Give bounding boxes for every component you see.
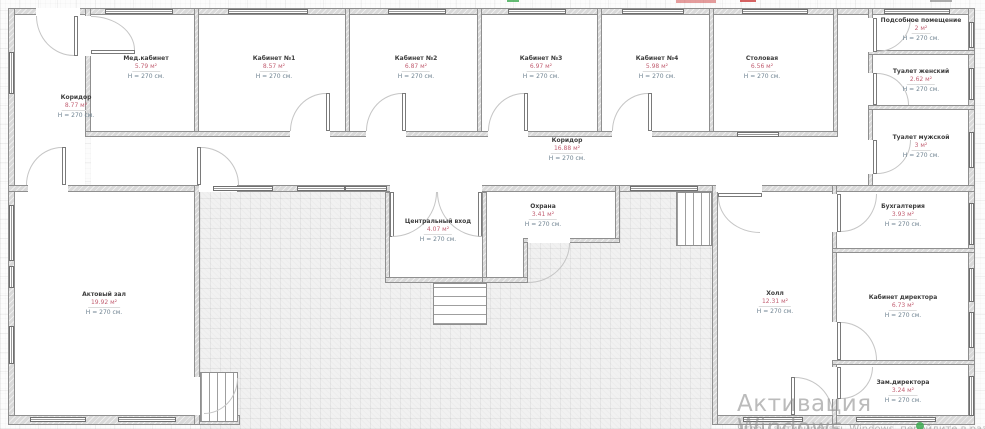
- door-opening: [390, 185, 482, 192]
- room-height: H = 270 см.: [405, 236, 471, 243]
- door-leaf[interactable]: [91, 50, 135, 54]
- window[interactable]: [297, 186, 345, 191]
- room-label-accounting: Бухгалтерия3.93 м²H = 270 см.: [881, 203, 925, 228]
- room-label-wc-men: Туалет мужской3 м²H = 270 см.: [893, 134, 950, 159]
- room-area: 12.31 м²: [759, 297, 791, 307]
- door-opening: [290, 131, 330, 137]
- room-name: Кабинет №3: [520, 55, 563, 62]
- window[interactable]: [969, 203, 974, 245]
- room-label-main-entrance: Центральный вход4.07 м²H = 270 см.: [405, 218, 471, 243]
- wall[interactable]: [712, 185, 718, 425]
- window[interactable]: [969, 312, 974, 348]
- wall[interactable]: [482, 277, 528, 283]
- window[interactable]: [9, 52, 14, 94]
- door-opening: [366, 131, 406, 137]
- room-label-office-1: Кабинет №18.57 м²H = 270 см.: [253, 55, 296, 80]
- room-height: H = 270 см.: [123, 73, 168, 80]
- room-name: Зам.директора: [877, 379, 930, 386]
- wall[interactable]: [832, 248, 975, 253]
- room-area: 3 м²: [912, 141, 931, 151]
- room-label-security: Охрана3.41 м²H = 270 см.: [525, 203, 561, 228]
- room-name: Актовый зал: [82, 291, 126, 298]
- door-opening: [612, 131, 652, 137]
- wall[interactable]: [194, 8, 199, 137]
- room-name: Холл: [757, 290, 793, 297]
- window[interactable]: [118, 417, 176, 422]
- wall[interactable]: [8, 185, 975, 192]
- door-opening: [36, 8, 80, 15]
- room-area: 6.87 м²: [402, 62, 430, 72]
- wall[interactable]: [868, 105, 975, 110]
- room-label-wc-women: Туалет женский2.62 м²H = 270 см.: [893, 68, 949, 93]
- room-height: H = 270 см.: [58, 112, 94, 119]
- wall[interactable]: [833, 8, 838, 137]
- room-name: Коридор: [549, 137, 585, 144]
- room-height: H = 270 см.: [253, 73, 296, 80]
- room-name: Мед.кабинет: [123, 55, 168, 62]
- wall[interactable]: [615, 185, 620, 243]
- room-height: H = 270 см.: [893, 86, 949, 93]
- window[interactable]: [622, 9, 684, 14]
- room-name: Кабинет №4: [636, 55, 679, 62]
- room-label-corridor-main: Коридор16.88 м²H = 270 см.: [549, 137, 585, 162]
- wall[interactable]: [482, 192, 487, 283]
- window[interactable]: [742, 9, 808, 14]
- door-leaf[interactable]: [326, 93, 330, 131]
- door-opening: [488, 131, 528, 137]
- room-area: 2.62 м²: [907, 75, 935, 85]
- room-area: 19.92 м²: [88, 298, 120, 308]
- window[interactable]: [213, 186, 273, 191]
- window[interactable]: [630, 186, 698, 191]
- room-label-office-2: Кабинет №26.87 м²H = 270 см.: [395, 55, 438, 80]
- wall[interactable]: [597, 8, 602, 137]
- room-area: 16.88 м²: [551, 144, 583, 154]
- room-label-office-3: Кабинет №36.97 м²H = 270 см.: [520, 55, 563, 80]
- window[interactable]: [969, 268, 974, 302]
- window[interactable]: [9, 205, 14, 261]
- toolbar-artifact-red2: [740, 0, 756, 2]
- window[interactable]: [388, 9, 446, 14]
- room-height: H = 270 см.: [869, 312, 938, 319]
- staircase[interactable]: [676, 192, 712, 246]
- window[interactable]: [737, 132, 779, 137]
- window[interactable]: [228, 9, 308, 14]
- window[interactable]: [345, 186, 387, 191]
- window[interactable]: [508, 9, 566, 14]
- room-label-director: Кабинет директора6.73 м²H = 270 см.: [869, 294, 938, 319]
- room-label-office-4: Кабинет №45.98 м²H = 270 см.: [636, 55, 679, 80]
- window[interactable]: [105, 9, 173, 14]
- window[interactable]: [969, 132, 974, 168]
- room-height: H = 270 см.: [82, 309, 126, 316]
- room-name: Центральный вход: [405, 218, 471, 225]
- staircase[interactable]: [433, 283, 487, 325]
- room-label-corridor-left: Коридор8.77 м²H = 270 см.: [58, 94, 94, 119]
- room-name: Охрана: [525, 203, 561, 210]
- room-name: Туалет мужской: [893, 134, 950, 141]
- floor-plan-canvas[interactable]: Коридор8.77 м²H = 270 см. Мед.кабинет5.7…: [0, 0, 985, 429]
- windows-activation-watermark-line2: Чтобы активировать Windows, перейдите в …: [737, 424, 985, 429]
- room-height: H = 270 см.: [881, 35, 962, 42]
- room-height: H = 270 см.: [549, 155, 585, 162]
- door-leaf[interactable]: [524, 93, 528, 131]
- wall[interactable]: [85, 131, 838, 137]
- room-label-utility: Подсобное помещение2 м²H = 270 см.: [881, 17, 962, 42]
- room-area: 6.97 м²: [527, 62, 555, 72]
- room-area: 5.79 м²: [132, 62, 160, 72]
- room-height: H = 270 см.: [395, 73, 438, 80]
- room-height: H = 270 см.: [893, 152, 950, 159]
- room-height: H = 270 см.: [744, 73, 780, 80]
- door-leaf[interactable]: [648, 93, 652, 131]
- toolbar-artifact-green: [507, 0, 519, 2]
- room-area: 8.57 м²: [260, 62, 288, 72]
- room-name: Подсобное помещение: [881, 17, 962, 24]
- room-name: Кабинет №2: [395, 55, 438, 62]
- room-height: H = 270 см.: [525, 221, 561, 228]
- toolbar-artifact-red: [676, 0, 716, 3]
- settings-icon: [916, 422, 924, 429]
- room-label-assembly-hall: Актовый зал19.92 м²H = 270 см.: [82, 291, 126, 316]
- door-opening: [716, 185, 762, 192]
- room-label-hall: Холл12.31 м²H = 270 см.: [757, 290, 793, 315]
- wall[interactable]: [709, 8, 714, 137]
- door-leaf[interactable]: [62, 147, 66, 185]
- wall[interactable]: [477, 8, 482, 137]
- window[interactable]: [884, 9, 950, 14]
- room-area: 3.93 м²: [889, 210, 917, 220]
- room-name: Бухгалтерия: [881, 203, 925, 210]
- room-height: H = 270 см.: [636, 73, 679, 80]
- window[interactable]: [969, 22, 974, 48]
- room-height: H = 270 см.: [881, 221, 925, 228]
- room-height: H = 270 см.: [520, 73, 563, 80]
- room-name: Туалет женский: [893, 68, 949, 75]
- door-opening: [28, 185, 68, 192]
- toolbar-artifact-gray: [930, 0, 952, 2]
- window[interactable]: [30, 417, 86, 422]
- room-name: Коридор: [58, 94, 94, 101]
- room-name: Кабинет №1: [253, 55, 296, 62]
- door-leaf[interactable]: [74, 16, 78, 56]
- window[interactable]: [9, 326, 14, 364]
- room-area: 6.73 м²: [889, 301, 917, 311]
- window[interactable]: [9, 266, 14, 288]
- room-label-dining: Столовая6.56 м²H = 270 см.: [744, 55, 780, 80]
- room-name: Столовая: [744, 55, 780, 62]
- wall[interactable]: [832, 360, 975, 365]
- wall[interactable]: [345, 8, 350, 137]
- room-name: Кабинет директора: [869, 294, 938, 301]
- room-area: 6.56 м²: [748, 62, 776, 72]
- room-security-ext[interactable]: [487, 238, 523, 277]
- room-area: 8.77 м²: [62, 101, 90, 111]
- room-area: 2 м²: [912, 24, 931, 34]
- room-area: 3.41 м²: [529, 210, 557, 220]
- room-area: 4.07 м²: [424, 225, 452, 235]
- room-label-med-office: Мед.кабинет5.79 м²H = 270 см.: [123, 55, 168, 80]
- room-area: 5.98 м²: [643, 62, 671, 72]
- room-height: H = 270 см.: [757, 308, 793, 315]
- window[interactable]: [969, 68, 974, 100]
- door-leaf[interactable]: [402, 93, 406, 131]
